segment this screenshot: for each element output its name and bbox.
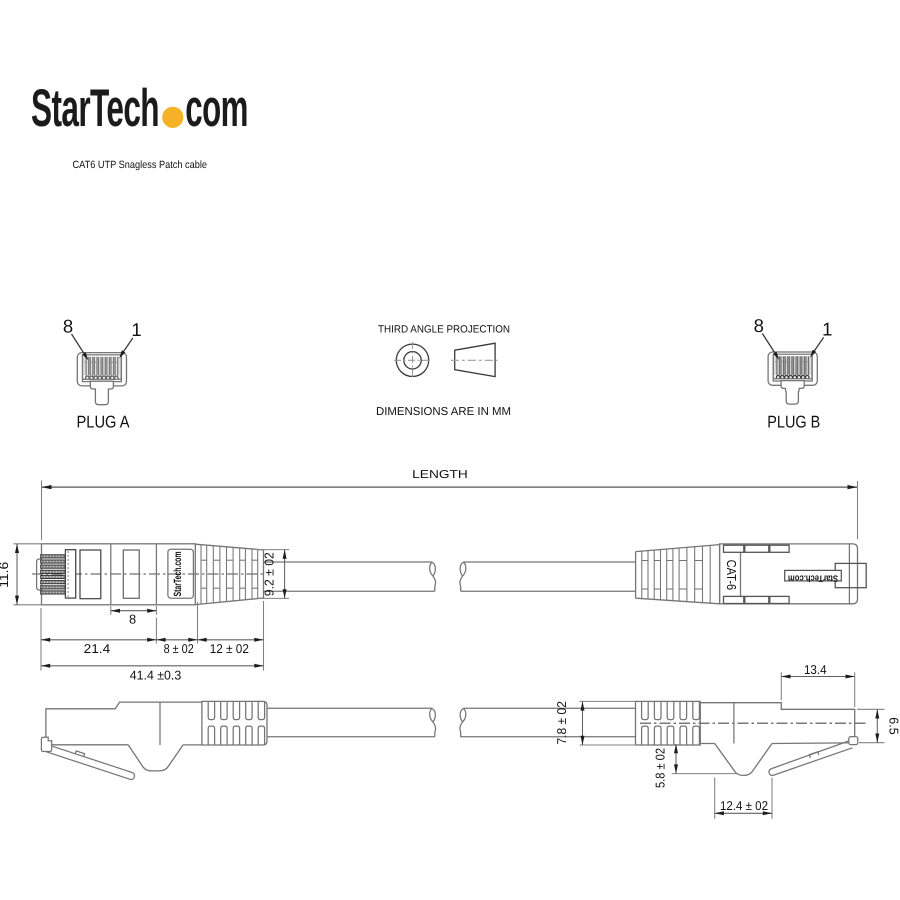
svg-text:11.6: 11.6 (0, 562, 11, 588)
svg-text:8: 8 (754, 315, 764, 336)
svg-text:THIRD ANGLE PROJECTION: THIRD ANGLE PROJECTION (378, 324, 510, 336)
svg-text:PLUG A: PLUG A (77, 413, 131, 432)
svg-text:9.2 ± 02: 9.2 ± 02 (262, 552, 277, 596)
svg-text:PLUG B: PLUG B (767, 413, 820, 432)
svg-text:6.5: 6.5 (887, 717, 900, 734)
svg-text:1: 1 (131, 319, 141, 340)
svg-text:LENGTH: LENGTH (412, 469, 468, 481)
svg-text:StarTech.com: StarTech.com (172, 552, 184, 597)
svg-text:DIMENSIONS ARE IN MM: DIMENSIONS ARE IN MM (376, 406, 511, 418)
svg-text:41.4 ±0.3: 41.4 ±0.3 (130, 668, 182, 683)
svg-text:8: 8 (63, 315, 73, 336)
svg-text:8 ± 02: 8 ± 02 (164, 641, 194, 656)
svg-text:com: com (185, 79, 248, 138)
svg-text:12 ± 02: 12 ± 02 (210, 641, 249, 656)
svg-text:7.8 ± 02: 7.8 ± 02 (554, 701, 569, 745)
svg-text:CAT6 UTP Snagless Patch cable: CAT6 UTP Snagless Patch cable (73, 159, 208, 171)
svg-text:21.4: 21.4 (84, 641, 111, 656)
svg-text:CAT-6: CAT-6 (724, 560, 739, 591)
svg-text:13.4: 13.4 (804, 662, 827, 677)
svg-text:StarTech.com: StarTech.com (788, 574, 838, 584)
svg-text:1: 1 (822, 318, 832, 339)
svg-text:5.8 ± 02: 5.8 ± 02 (653, 748, 668, 788)
svg-text:12.4 ± 02: 12.4 ± 02 (720, 798, 768, 813)
svg-text:8: 8 (129, 611, 136, 626)
svg-text:StarTech: StarTech (31, 79, 159, 138)
